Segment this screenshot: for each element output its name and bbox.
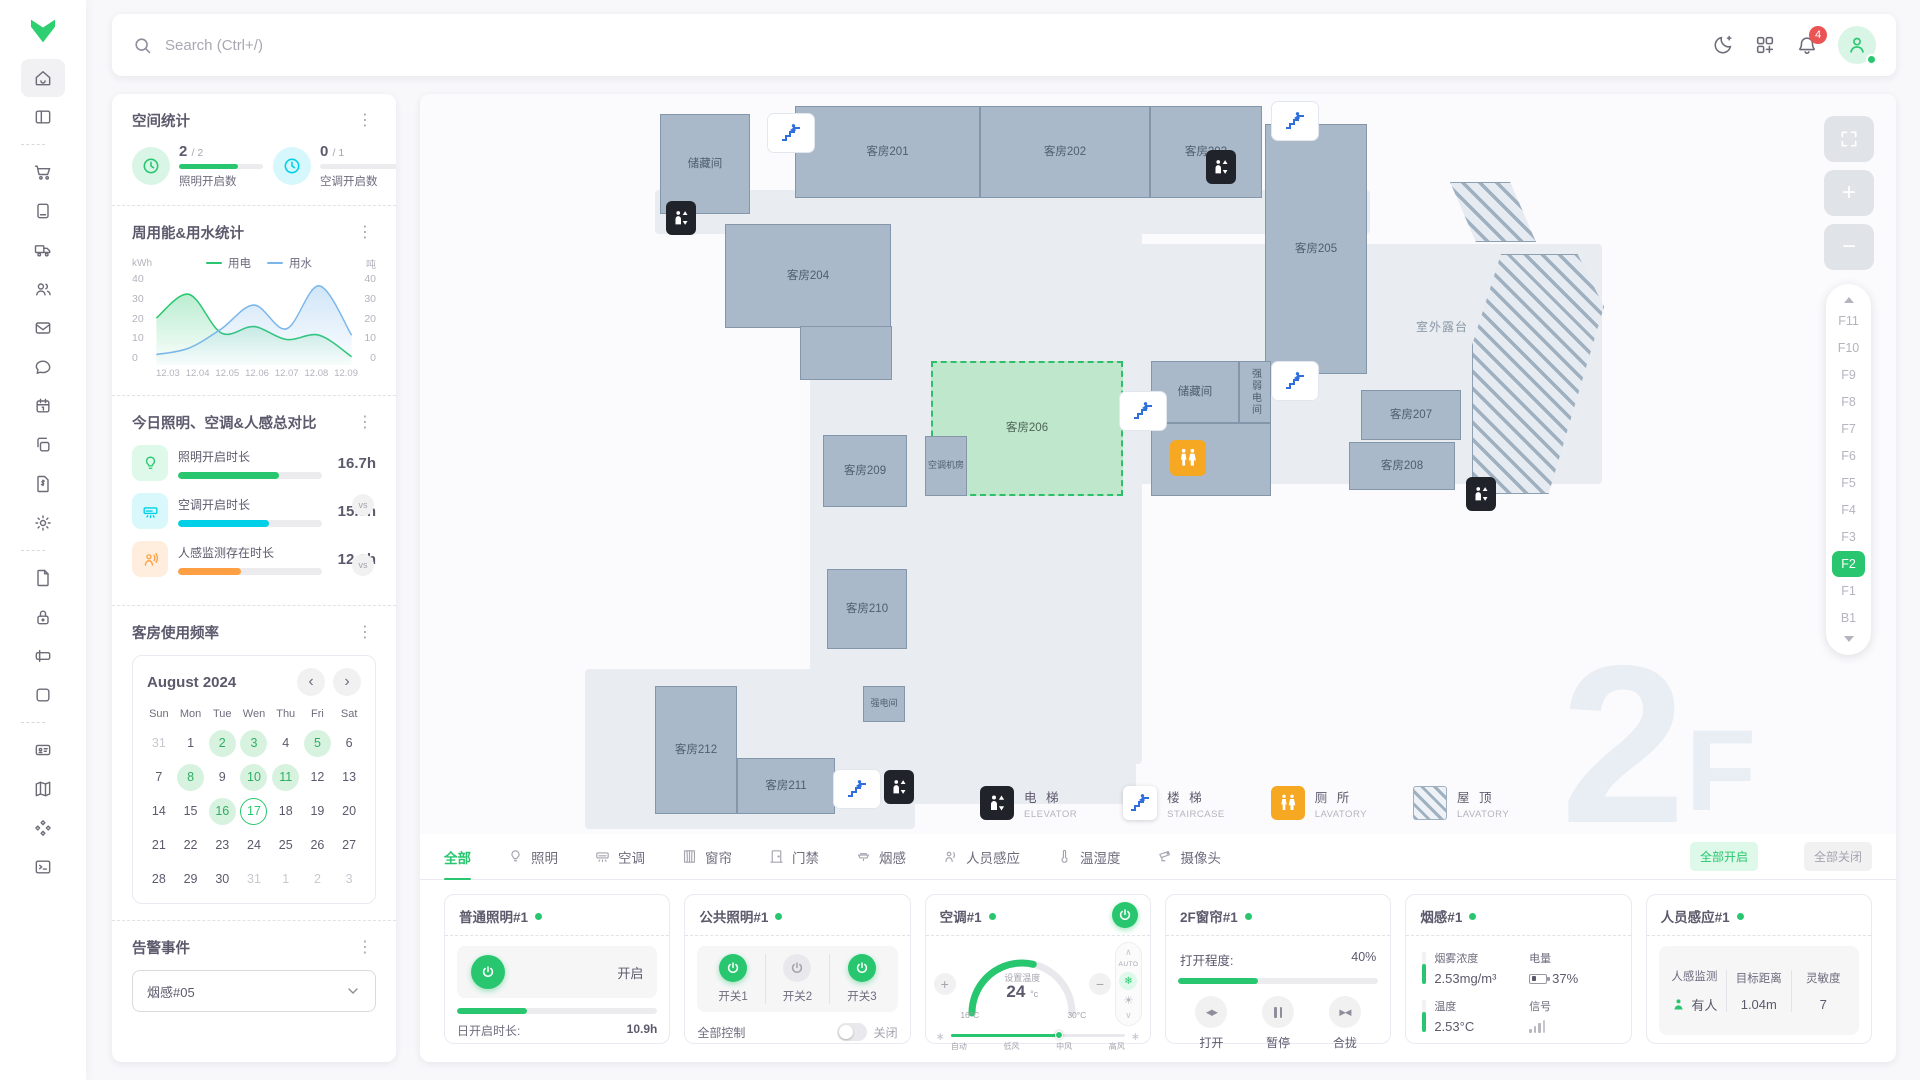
calendar-day[interactable]: 20 — [336, 798, 363, 825]
tab-门禁[interactable]: 门禁 — [768, 834, 819, 879]
calendar-day[interactable]: 31 — [240, 866, 267, 893]
y-axis-left: 403020100 — [132, 273, 153, 365]
temp-decrease-button[interactable]: + — [934, 973, 956, 995]
room-客房204-5[interactable]: 客房204 — [725, 224, 891, 328]
kebab-menu-icon[interactable]: ⋮ — [354, 625, 376, 641]
sidebar-item-shapes[interactable] — [21, 809, 65, 847]
compare-label: 空调开启时长 — [178, 496, 322, 513]
elevator-icon — [980, 786, 1014, 820]
kebab-menu-icon[interactable]: ⋮ — [354, 415, 376, 431]
ac-on-stat: 0 / 1 空调开启数 — [273, 143, 396, 189]
calendar-day[interactable]: 1 — [177, 730, 204, 757]
device-card-ac: 空调#1 + 设置温度 24 °c 16°C — [925, 894, 1151, 1044]
switch-label: 开关2 — [783, 988, 812, 1004]
floor-down-arrow[interactable] — [1844, 636, 1854, 642]
metric-value: 2.53mg/m³ — [1434, 971, 1496, 986]
calendar-day[interactable]: 16 — [209, 798, 236, 825]
y-unit-left: kWh — [132, 258, 152, 269]
watermark-number: 2 — [1561, 657, 1686, 833]
power-button[interactable] — [471, 955, 505, 989]
search-icon — [132, 35, 153, 56]
tab-摄像头[interactable]: 摄像头 — [1157, 834, 1222, 879]
tab-窗帘[interactable]: 窗帘 — [681, 834, 732, 879]
stat-denominator: / 2 — [192, 147, 204, 159]
room-extension — [800, 326, 892, 380]
sidebar-item-truck[interactable] — [21, 231, 65, 269]
sidebar-items — [21, 58, 65, 887]
room-客房207-10[interactable]: 客房207 — [1361, 390, 1461, 440]
presence-detect-col: 人感监测 有人 — [1663, 968, 1726, 1014]
floor-F1[interactable]: F1 — [1832, 578, 1865, 604]
calendar-day[interactable]: 6 — [336, 730, 363, 757]
staircase-icon — [768, 114, 814, 152]
calendar-day[interactable]: 28 — [145, 866, 172, 893]
tab-人员感应[interactable]: 人员感应 — [942, 834, 1020, 879]
room-客房212-15[interactable]: 客房212 — [655, 686, 737, 814]
legend-swatch — [267, 262, 283, 264]
room-强弱电间-9[interactable]: 强弱电间 — [1239, 361, 1271, 423]
all-control-label: 全部控制 — [697, 1024, 745, 1041]
ac-icon — [132, 493, 168, 529]
room-客房209-12[interactable]: 客房209 — [823, 435, 907, 507]
sidebar-item-home[interactable] — [21, 59, 65, 97]
calendar-day[interactable]: 1 — [272, 866, 299, 893]
chat-icon — [33, 357, 53, 377]
calendar-day[interactable]: 15 — [177, 798, 204, 825]
floor-F11[interactable]: F11 — [1832, 308, 1865, 334]
calendar-day[interactable]: 31 — [145, 730, 172, 757]
compare-section: 今日照明、空调&人感总对比 ⋮ 照明开启时长 16.7h 空调开启时长 — [112, 395, 396, 605]
tab-list: 全部照明空调窗帘门禁烟感人员感应温湿度摄像头 — [444, 834, 1221, 879]
sidebar-item-terminal[interactable] — [21, 848, 65, 886]
floor-F5[interactable]: F5 — [1832, 470, 1865, 496]
user-avatar[interactable] — [1838, 26, 1876, 64]
room-强电间-14[interactable]: 强电间 — [863, 686, 905, 722]
floor-F8[interactable]: F8 — [1832, 389, 1865, 415]
room-客房202-2[interactable]: 客房202 — [980, 106, 1150, 198]
floor-F6[interactable]: F6 — [1832, 443, 1865, 469]
all-off-button[interactable]: 全部关闭 — [1804, 842, 1872, 871]
y-tick: 0 — [370, 352, 376, 364]
smoke-density-metric: 烟雾浓度 2.53mg/m³ — [1422, 950, 1529, 986]
calendar-day[interactable]: 10 — [240, 764, 267, 791]
temp-increase-button[interactable]: − — [1089, 973, 1111, 995]
brand-logo-icon[interactable] — [26, 14, 60, 44]
calendar-day[interactable]: 26 — [304, 832, 331, 859]
compare-row-presence: 人感监测存在时长 12.3h — [132, 541, 376, 577]
button-label: 合拢 — [1333, 1034, 1357, 1051]
zoom-in-button[interactable]: + — [1824, 170, 1874, 216]
tab-label: 窗帘 — [705, 847, 732, 867]
weekday-label: Thu — [270, 708, 302, 720]
tab-照明[interactable]: 照明 — [507, 834, 558, 879]
metric-label: 灵敏度 — [1792, 970, 1855, 986]
calendar-day[interactable]: 11 — [272, 764, 299, 791]
shortcuts-button[interactable] — [1754, 34, 1776, 56]
toggle-state-label: 关闭 — [874, 1024, 898, 1041]
x-tick: 12.06 — [245, 368, 269, 379]
chevron-down-icon[interactable]: ∨ — [1125, 1011, 1132, 1020]
ac-icon — [594, 848, 611, 865]
power-button[interactable] — [783, 954, 811, 982]
gear-icon — [33, 513, 53, 533]
power-button[interactable] — [719, 954, 747, 982]
status-dot — [1245, 913, 1252, 920]
staircase-icon — [1272, 102, 1318, 140]
room-客房201-1[interactable]: 客房201 — [795, 106, 980, 198]
floor-F10[interactable]: F10 — [1832, 335, 1865, 361]
clock-icon — [273, 147, 311, 185]
calendar-day[interactable]: 14 — [145, 798, 172, 825]
staircase-icon — [1123, 786, 1157, 820]
tab-烟感[interactable]: 烟感 — [855, 834, 906, 879]
tab-label: 摄像头 — [1181, 847, 1222, 867]
compare-progress-fill — [178, 472, 279, 479]
book-icon — [33, 201, 53, 221]
sidebar-divider — [21, 144, 45, 145]
fan-speed-option[interactable]: 中风 — [1056, 1041, 1072, 1052]
floor-plan: 2 F 储藏间客房201客房202客房203客房205客房204客房206空调机… — [420, 94, 1896, 834]
calendar-day[interactable]: 19 — [304, 798, 331, 825]
cool-mode-icon[interactable]: ❄ — [1119, 972, 1137, 990]
sidebar-item-copy[interactable] — [21, 426, 65, 464]
bulb-icon — [507, 848, 524, 865]
ac-mode-panel: ∧ AUTO ❄ ☀ ∨ — [1115, 942, 1142, 1026]
set-temp-value: 24 — [1006, 982, 1025, 1001]
all-control-toggle[interactable] — [837, 1023, 867, 1041]
alarm-selected-value: 烟感#05 — [147, 982, 195, 1001]
metric-label: 温度 — [1434, 998, 1474, 1014]
switch-1[interactable]: 开关1 — [701, 954, 764, 1004]
roof-area — [1450, 182, 1536, 242]
tab-空调[interactable]: 空调 — [594, 834, 645, 879]
sidebar-item-square[interactable] — [21, 676, 65, 714]
mail-icon — [33, 318, 53, 338]
heat-mode-icon[interactable]: ☀ — [1124, 994, 1134, 1007]
duration-progress-track — [457, 1008, 657, 1014]
device-title: 2F窗帘#1 — [1180, 906, 1238, 926]
room-储藏间-0[interactable]: 储藏间 — [660, 114, 750, 214]
fullscreen-button[interactable] — [1824, 116, 1874, 162]
alarm-device-select[interactable]: 烟感#05 — [132, 970, 376, 1012]
device-title: 普通照明#1 — [459, 906, 528, 926]
status-dot — [1737, 913, 1744, 920]
calendar: August 2024 ‹ › SunMonTueWenThuFriSat311… — [132, 655, 376, 904]
device-card-public-light: 公共照明#1 开关1 开关2 开关3 — [684, 894, 910, 1044]
calendar-day[interactable]: 30 — [209, 866, 236, 893]
corridor — [906, 654, 1136, 804]
room-label: 客房207 — [1390, 408, 1432, 423]
calendar-day[interactable]: 17 — [240, 798, 267, 825]
dark-mode-button[interactable] — [1712, 34, 1734, 56]
legend-elevator: 电 梯ELEVATOR — [980, 786, 1077, 820]
stat-value: 2 — [179, 143, 187, 160]
y-tick: 30 — [132, 293, 153, 305]
floor-F4[interactable]: F4 — [1832, 497, 1865, 523]
stat-denominator: / 1 — [333, 147, 345, 159]
calendar-day[interactable]: 3 — [240, 730, 267, 757]
gauge-bar — [1422, 952, 1426, 984]
stat-progress-track — [320, 164, 396, 169]
room-label: 储藏间 — [1178, 385, 1213, 400]
compare-label: 人感监测存在时长 — [178, 544, 322, 561]
lighting-on-stat: 2 / 2 照明开启数 — [132, 143, 263, 189]
compare-value: 16.7h — [332, 455, 376, 472]
calendar-day[interactable]: 23 — [209, 832, 236, 859]
device-tabs: 全部照明空调窗帘门禁烟感人员感应温湿度摄像头 全部开启 全部关闭 — [420, 834, 1896, 880]
battery-icon — [1529, 974, 1547, 984]
watermark-letter: F — [1686, 711, 1756, 832]
device-title: 人员感应#1 — [1661, 906, 1730, 926]
fan-speed-option[interactable]: 高风 — [1109, 1041, 1125, 1052]
tab-label: 照明 — [531, 847, 558, 867]
calendar-next-button[interactable]: › — [333, 668, 361, 696]
floor-F9[interactable]: F9 — [1832, 362, 1865, 388]
curtain-open-button[interactable]: ◀▶ 打开 — [1195, 996, 1227, 1051]
target-distance-col: 目标距离 1.04m — [1726, 970, 1790, 1012]
elevator-icon — [884, 770, 914, 804]
y-tick: 30 — [364, 293, 376, 305]
sidebar-item-invoice[interactable] — [21, 465, 65, 503]
room-label: 客房201 — [866, 145, 908, 160]
terminal-icon — [33, 857, 53, 877]
room-label: 空调机房 — [928, 460, 964, 472]
stat-value: 0 — [320, 143, 328, 160]
stat-progress-track — [179, 164, 263, 169]
calendar-day[interactable]: 22 — [177, 832, 204, 859]
y-tick: 20 — [132, 313, 153, 325]
zoom-out-button[interactable]: − — [1824, 224, 1874, 270]
room-label: 客房212 — [675, 743, 717, 758]
fan-speed-option[interactable]: 自动 — [951, 1041, 967, 1052]
sidebar-divider — [21, 722, 45, 723]
y-unit-right: 吨 — [366, 256, 376, 271]
switch-label: 开关1 — [718, 988, 747, 1004]
fan-speed-slider[interactable]: 自动低风中风高风 — [951, 1031, 1125, 1053]
shapes-icon — [33, 818, 53, 838]
energy-chart-section: 周用能&用水统计 ⋮ kWh 用电用水 吨 403020100 40302010… — [112, 205, 396, 395]
calendar-day[interactable]: 24 — [240, 832, 267, 859]
calendar-day[interactable]: 21 — [145, 832, 172, 859]
curtain-icon — [681, 848, 698, 865]
input-icon — [33, 646, 53, 666]
room-label: 客房206 — [1006, 421, 1048, 436]
calendar-day[interactable]: 4 — [272, 730, 299, 757]
sidebar-item-file[interactable] — [21, 559, 65, 597]
calendar-day[interactable]: 2 — [209, 730, 236, 757]
online-status-dot — [1866, 54, 1877, 65]
compare-progress-fill — [178, 568, 241, 575]
metric-value: 2.53°C — [1434, 1019, 1474, 1034]
x-tick: 12.08 — [305, 368, 329, 379]
bulb-icon — [132, 445, 168, 481]
sidebar-item-book[interactable] — [21, 192, 65, 230]
calendar-day[interactable]: 9 — [209, 764, 236, 791]
y-tick: 40 — [132, 273, 153, 285]
temp-unit: °c — [1030, 989, 1038, 999]
clock-icon — [132, 147, 170, 185]
x-tick: 12.05 — [215, 368, 239, 379]
fan-speed-labels: 自动低风中风高风 — [951, 1041, 1125, 1052]
copy-icon — [33, 435, 53, 455]
legend-en-label: STAIRCASE — [1167, 809, 1225, 820]
y-tick: 0 — [132, 352, 153, 364]
sidebar-item-idcard[interactable] — [21, 731, 65, 769]
room-空调机房-7[interactable]: 空调机房 — [925, 436, 967, 496]
sidebar-item-lock[interactable] — [21, 598, 65, 636]
stat-progress-fill — [179, 164, 238, 169]
switch-2[interactable]: 开关2 — [765, 954, 829, 1004]
sidebar-item-map[interactable] — [21, 770, 65, 808]
status-dot — [989, 913, 996, 920]
button-label: 打开 — [1199, 1034, 1223, 1051]
room-label: 客房210 — [846, 602, 888, 617]
alarm-section: 告警事件 ⋮ 烟感#05 — [112, 920, 396, 1028]
room-客房205-4[interactable]: 客房205 — [1265, 124, 1367, 374]
chevron-up-icon[interactable]: ∧ — [1125, 948, 1132, 957]
sensitivity-col: 灵敏度 7 — [1791, 970, 1855, 1012]
open-progress-track — [1178, 978, 1378, 984]
floor-B1[interactable]: B1 — [1832, 605, 1865, 631]
search-bar — [132, 35, 1712, 56]
compare-row-lighting: 照明开启时长 16.7h — [132, 445, 376, 481]
signal-icon — [1529, 1019, 1545, 1033]
curtain-pause-button[interactable]: 暂停 — [1262, 996, 1294, 1051]
kebab-menu-icon[interactable]: ⋮ — [354, 225, 376, 241]
search-input[interactable] — [165, 37, 665, 54]
y-tick: 10 — [364, 332, 376, 344]
sidebar-item-cart[interactable] — [21, 153, 65, 191]
tab-温湿度[interactable]: 温湿度 — [1056, 834, 1121, 879]
calendar-prev-button[interactable]: ‹ — [297, 668, 325, 696]
notifications-button[interactable]: 4 — [1796, 34, 1818, 56]
kebab-menu-icon[interactable]: ⋮ — [354, 940, 376, 956]
metric-label: 信号 — [1529, 998, 1551, 1014]
sidebar-item-gear[interactable] — [21, 504, 65, 542]
tab-label: 烟感 — [879, 847, 906, 867]
calendar-day[interactable]: 12 — [304, 764, 331, 791]
tab-全部[interactable]: 全部 — [444, 834, 471, 879]
energy-water-chart — [153, 273, 355, 365]
calendar-day[interactable]: 3 — [336, 866, 363, 893]
device-title: 空调#1 — [940, 906, 982, 926]
x-tick: 12.07 — [275, 368, 299, 379]
calendar-day[interactable]: 27 — [336, 832, 363, 859]
calendar-month-label: August 2024 — [147, 674, 236, 691]
calendar-day[interactable]: 5 — [304, 730, 331, 757]
vs-badge: vs — [352, 494, 374, 516]
sidebar-item-chat[interactable] — [21, 348, 65, 386]
status-dot — [1469, 913, 1476, 920]
fan-icon: ∗ — [936, 1032, 945, 1043]
button-label: 暂停 — [1266, 1034, 1290, 1051]
elevator-icon — [666, 201, 696, 235]
compare-progress-track — [178, 472, 322, 479]
x-tick: 12.09 — [334, 368, 358, 379]
outdoor-terrace-label: 室外露台 — [1416, 318, 1468, 335]
lock-icon — [33, 607, 53, 627]
chevron-down-icon — [345, 983, 361, 999]
floor-up-arrow[interactable] — [1844, 297, 1854, 303]
sidebar-item-layout[interactable] — [21, 98, 65, 136]
fan-speed-option[interactable]: 低风 — [1004, 1041, 1020, 1052]
room-label: 客房205 — [1295, 242, 1337, 257]
sidebar-item-calendar[interactable] — [21, 387, 65, 425]
room-客房210-13[interactable]: 客房210 — [827, 569, 907, 649]
floor-F3[interactable]: F3 — [1832, 524, 1865, 550]
device-card-presence: 人员感应#1 人感监测 有人 目标距离 1.04m — [1646, 894, 1872, 1044]
calendar-day[interactable]: 25 — [272, 832, 299, 859]
legend-item[interactable]: 用水 — [267, 255, 312, 271]
calendar-icon — [33, 396, 53, 416]
section-title: 告警事件 — [132, 937, 190, 958]
sidebar-item-mail[interactable] — [21, 309, 65, 347]
x-tick: 12.03 — [156, 368, 180, 379]
legend-zh-label: 电 梯 — [1024, 787, 1077, 806]
calendar-day[interactable]: 29 — [177, 866, 204, 893]
device-card-normal-light: 普通照明#1 开启 日开启时长: 10.9h — [444, 894, 670, 1044]
truck-icon — [33, 240, 53, 260]
elevator-icon — [1206, 150, 1236, 184]
open-icon: ◀▶ — [1195, 996, 1227, 1028]
calendar-day[interactable]: 7 — [145, 764, 172, 791]
legend-item[interactable]: 用电 — [206, 255, 251, 271]
duration-label: 日开启时长: — [457, 1022, 520, 1039]
floor-F2[interactable]: F2 — [1832, 551, 1865, 577]
elevator-icon — [1466, 477, 1496, 511]
gauge-bar — [1422, 1000, 1426, 1032]
curtain-close-button[interactable]: ▶◀ 合拢 — [1329, 996, 1361, 1051]
square-icon — [33, 685, 53, 705]
legend-en-label: LAVATORY — [1457, 809, 1509, 820]
invoice-icon — [33, 474, 53, 494]
legend-zh-label: 楼 梯 — [1167, 787, 1225, 806]
room-label: 储藏间 — [688, 157, 723, 172]
kebab-menu-icon[interactable]: ⋮ — [354, 113, 376, 129]
top-bar: 4 — [112, 14, 1896, 76]
compare-row-ac: 空调开启时长 15.3h — [132, 493, 376, 529]
switch-3[interactable]: 开关3 — [829, 954, 893, 1004]
room-客房211-16[interactable]: 客房211 — [737, 758, 835, 814]
ac-power-button[interactable] — [1112, 902, 1138, 928]
legend-zh-label: 屋 顶 — [1457, 787, 1509, 806]
calendar-day[interactable]: 18 — [272, 798, 299, 825]
compare-progress-track — [178, 568, 322, 575]
smoke-icon — [855, 848, 872, 865]
floor-F7[interactable]: F7 — [1832, 416, 1865, 442]
all-on-button[interactable]: 全部开启 — [1690, 842, 1758, 871]
roof-icon — [1413, 786, 1447, 820]
legend-zh-label: 厕 所 — [1315, 787, 1367, 806]
device-card-smoke: 烟感#1 烟雾浓度 2.53mg/m³ 电量 37% — [1405, 894, 1631, 1044]
section-title: 客房使用频率 — [132, 622, 219, 643]
calendar-day[interactable]: 8 — [177, 764, 204, 791]
room-客房208-11[interactable]: 客房208 — [1349, 442, 1455, 490]
sidebar-item-input[interactable] — [21, 637, 65, 675]
power-button[interactable] — [848, 954, 876, 982]
legend-label: 用电 — [228, 255, 251, 271]
sidebar-item-users[interactable] — [21, 270, 65, 308]
room-label: 客房208 — [1381, 459, 1423, 474]
room-usage-section: 客房使用频率 ⋮ August 2024 ‹ › SunMonTueWenThu… — [112, 605, 396, 920]
calendar-day[interactable]: 13 — [336, 764, 363, 791]
notification-badge: 4 — [1809, 26, 1827, 44]
calendar-day[interactable]: 2 — [304, 866, 331, 893]
metric-value: 1.04m — [1741, 997, 1777, 1012]
stat-label: 空调开启数 — [320, 173, 396, 189]
door-icon — [768, 848, 785, 865]
tab-label: 全部 — [444, 847, 471, 867]
